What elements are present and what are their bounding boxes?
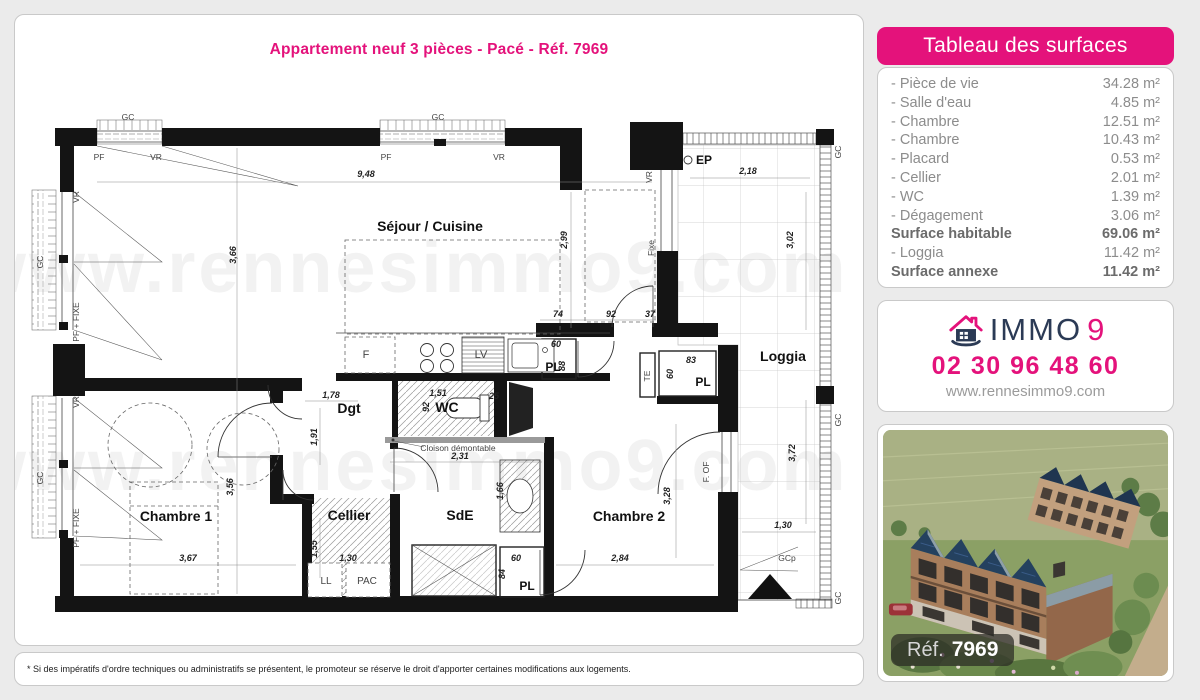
plan-label: F. OF (701, 462, 711, 483)
plan-label: PAC (357, 576, 377, 587)
surface-row: - Dégagement3.06 m² (878, 207, 1173, 226)
surface-row: Surface habitable69.06 m² (878, 225, 1173, 244)
ref-badge: Réf. 7969 (891, 634, 1014, 666)
plan-label: 3,72 (787, 444, 797, 462)
plan-label: SdE (446, 507, 473, 523)
plan-label: PF (94, 152, 105, 162)
surface-row: Surface annexe11.42 m² (878, 263, 1173, 282)
agency-card: IMMO9 02 30 96 48 60 www.rennesimmo9.com (877, 300, 1174, 412)
plan-label: Loggia (760, 348, 806, 364)
plan-label: 2,99 (559, 231, 569, 250)
plan-label: PF + FIXE (71, 302, 81, 342)
plan-label: 3,28 (662, 487, 672, 505)
plan-label: VR (150, 152, 162, 162)
page-title: Appartement neuf 3 pièces - Pacé - Réf. … (15, 41, 863, 59)
plan-label: 1,30 (339, 553, 357, 563)
plan-label: VR (644, 171, 654, 183)
floor-plan: Séjour / CuisineChambre 1Chambre 2Cellie… (15, 15, 864, 646)
agency-logo: IMMO9 (878, 311, 1173, 349)
surface-row: - Loggia11.42 m² (878, 244, 1173, 263)
plan-label: Fixe (646, 240, 656, 256)
plan-label: GCp (778, 553, 796, 563)
plan-label: 60 (511, 553, 521, 563)
plan-label: 60 (665, 369, 675, 379)
ref-number: 7969 (952, 638, 999, 662)
plan-label: 92 (606, 309, 616, 319)
phone-number: 02 30 96 48 60 (878, 352, 1173, 381)
floorplan-panel: www.rennesimmo9.com www.rennesimmo9.com (14, 14, 864, 646)
plan-label: Dgt (337, 400, 361, 416)
page: { "title": "Appartement neuf 3 pièces - … (0, 0, 1200, 700)
plan-label: F (363, 349, 370, 361)
plan-label: VR (71, 396, 81, 408)
plan-label: GC (432, 112, 445, 122)
plan-label: VR (71, 191, 81, 203)
surface-row: - Chambre10.43 m² (878, 131, 1173, 150)
plan-label: 1,66 (495, 481, 505, 500)
loggia-railing (820, 145, 831, 600)
stove (421, 344, 454, 373)
disclaimer-box: * Si des impératifs d'ordre techniques o… (14, 652, 864, 686)
plan-label: 2,18 (738, 166, 757, 176)
surface-row: - Pièce de vie34.28 m² (878, 75, 1173, 94)
plan-label: 83 (686, 355, 696, 365)
plan-label: GC (833, 146, 843, 159)
plan-label: Séjour / Cuisine (377, 218, 483, 234)
photo-card: Réf. 7969 (877, 424, 1174, 682)
plan-label: 92 (421, 402, 431, 412)
ref-label: Réf. (907, 639, 944, 662)
plan-label: Cloison démontable (420, 443, 495, 453)
plan-label: 1,30 (774, 520, 792, 530)
plan-label: 1,55 (309, 539, 319, 558)
surface-row: - Placard0.53 m² (878, 150, 1173, 169)
plan-label: PL (695, 375, 710, 389)
plan-label: LL (320, 576, 332, 587)
plan-label: GC (122, 112, 135, 122)
plan-label: GC (35, 472, 45, 485)
plan-label: EP (696, 153, 712, 167)
plan-label: 3,66 (228, 245, 238, 264)
plan-label: 3,67 (179, 553, 198, 563)
plan-label: 1,91 (309, 428, 319, 446)
plan-label: TE (642, 370, 652, 381)
plan-label: GC (35, 256, 45, 269)
windows (62, 131, 731, 536)
plan-label: LV (475, 349, 488, 361)
plan-label: GC (833, 592, 843, 605)
plan-label: 3,56 (225, 477, 235, 496)
plan-label: 74 (553, 309, 563, 319)
surface-row: - WC1.39 m² (878, 188, 1173, 207)
building-photo: Réf. 7969 (883, 430, 1168, 676)
plan-label: 25 (488, 391, 500, 401)
plan-label: Cellier (328, 507, 371, 523)
plan-label: Chambre 2 (593, 508, 666, 524)
plan-label: WC (435, 399, 458, 415)
disclaimer-text: * Si des impératifs d'ordre techniques o… (27, 664, 631, 674)
entry-door (509, 382, 533, 436)
plan-label: PL (519, 579, 534, 593)
surfaces-table-header: Tableau des surfaces (877, 27, 1174, 65)
brand-immo: IMMO (990, 312, 1082, 348)
plan-label: PF + FIXE (71, 508, 81, 548)
surface-row: - Cellier2.01 m² (878, 169, 1173, 188)
plan-label: 3,02 (785, 231, 795, 249)
surface-row: - Salle d'eau4.85 m² (878, 94, 1173, 113)
surfaces-table: - Pièce de vie34.28 m²- Salle d'eau4.85 … (877, 67, 1174, 288)
plan-label: 1,51 (429, 388, 447, 398)
plan-label: 9,48 (357, 169, 375, 179)
plan-label: 60 (551, 339, 561, 349)
plan-label: Chambre 1 (140, 508, 213, 524)
plan-label: 37 (645, 309, 656, 319)
washbasin (507, 479, 533, 513)
plan-label: PF (381, 152, 392, 162)
plan-label: VR (493, 152, 505, 162)
plan-label: GC (833, 414, 843, 427)
plan-label: 1,78 (322, 390, 340, 400)
plan-label: 84 (497, 569, 507, 579)
plan-label: 2,84 (610, 553, 629, 563)
brand-9: 9 (1087, 312, 1104, 348)
surface-row: - Chambre12.51 m² (878, 113, 1173, 132)
plan-label: 88 (557, 361, 567, 371)
loggia-railing (683, 133, 816, 144)
website-url: www.rennesimmo9.com (878, 383, 1173, 400)
house-icon (947, 312, 985, 348)
